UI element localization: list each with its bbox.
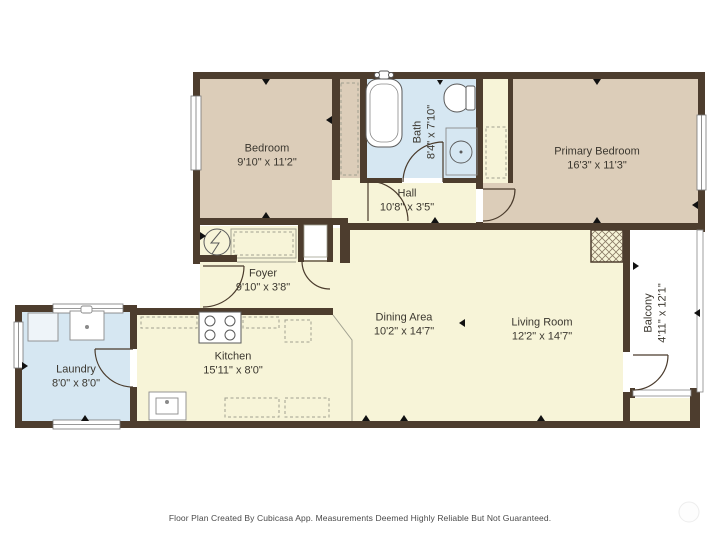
window-primary-right [697, 115, 706, 190]
room-dims: 9'10" x 3'8" [236, 281, 290, 295]
toilet-icon [444, 84, 475, 112]
fireplace-hatch-icon [591, 230, 623, 262]
room-label-kitchen: Kitchen 15'11" x 8'0" [203, 350, 263, 379]
washer-icon [28, 313, 58, 341]
kitchen-sink-icon [149, 392, 186, 420]
opening-entry [193, 264, 200, 308]
room-label-bath: Bath 8'4" x 7'10" [411, 105, 440, 159]
room-label-bedroom: Bedroom 9'10" x 11'2" [237, 142, 297, 171]
room-dims: 8'0" x 8'0" [52, 377, 100, 391]
room-label-primary-bedroom: Primary Bedroom 16'3" x 11'3" [554, 145, 640, 174]
room-dims: 12'2" x 14'7" [511, 330, 572, 344]
wall-bedroom-bottom [193, 218, 348, 225]
room-dims: 9'10" x 11'2" [237, 156, 297, 170]
opening-bath [402, 178, 443, 183]
room-label-hall: Hall 10'8" x 3'5" [380, 187, 434, 216]
hall-closet-interior [304, 225, 327, 257]
kitchen-stove-icon [199, 312, 241, 343]
room-dims: 15'11" x 8'0" [203, 364, 263, 378]
room-name: Bedroom [237, 142, 297, 156]
laundry-sink-icon [70, 306, 104, 340]
storage-nook-floor [630, 398, 690, 423]
wall-primary-closet [508, 79, 513, 183]
room-name: Balcony [642, 283, 656, 343]
wall-lower-right [690, 388, 700, 428]
room-name: Kitchen [203, 350, 263, 364]
water-heater-icon [204, 229, 230, 255]
room-name: Foyer [236, 267, 290, 281]
window-laundry-bottom [53, 420, 120, 429]
opening-laundry [130, 349, 137, 387]
room-label-foyer: Foyer 9'10" x 3'8" [236, 267, 290, 296]
opening-primary [476, 189, 483, 222]
wall-hall-primary-bottom [348, 223, 705, 230]
room-label-balcony: Balcony 4'11" x 12'1" [642, 283, 671, 343]
opening-balcony [623, 352, 630, 392]
room-label-laundry: Laundry 8'0" x 8'0" [52, 363, 100, 392]
room-dims: 10'8" x 3'5" [380, 201, 434, 215]
room-name: Bath [411, 105, 425, 159]
room-name: Primary Bedroom [554, 145, 640, 159]
room-dims: 16'3" x 11'3" [554, 159, 640, 173]
window-bedroom-left [191, 96, 201, 170]
wall-top [193, 72, 705, 79]
room-name: Hall [380, 187, 434, 201]
room-name: Living Room [511, 316, 572, 330]
wall-bedroom-right [332, 79, 340, 180]
room-dims: 8'4" x 7'10" [425, 105, 439, 159]
wall-hallcloset-right [327, 225, 333, 262]
room-name: Laundry [52, 363, 100, 377]
floor-plan-drawing [0, 0, 720, 540]
floor-plan-page: Bedroom 9'10" x 11'2" Bath 8'4" x 7'10" … [0, 0, 720, 540]
wall-hallcloset-left [298, 225, 304, 262]
disclaimer-text: Floor Plan Created By Cubicasa App. Meas… [0, 513, 720, 523]
room-label-living-room: Living Room 12'2" x 14'7" [511, 316, 572, 345]
room-label-dining-area: Dining Area 10'2" x 14'7" [374, 311, 434, 340]
window-laundry-left [14, 322, 23, 368]
room-dims: 4'11" x 12'1" [656, 283, 670, 343]
wall-foyercloset-bottom [193, 255, 237, 262]
bathtub-icon [366, 71, 402, 147]
room-dims: 10'2" x 14'7" [374, 325, 434, 339]
room-name: Dining Area [374, 311, 434, 325]
